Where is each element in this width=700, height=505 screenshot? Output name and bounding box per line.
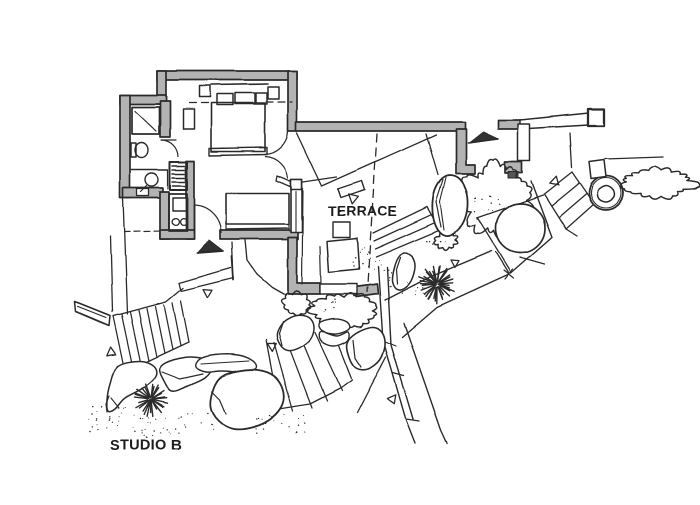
svg-text:STUDIO B: STUDIO B: [110, 438, 182, 454]
svg-text:TERRACE: TERRACE: [328, 203, 397, 219]
